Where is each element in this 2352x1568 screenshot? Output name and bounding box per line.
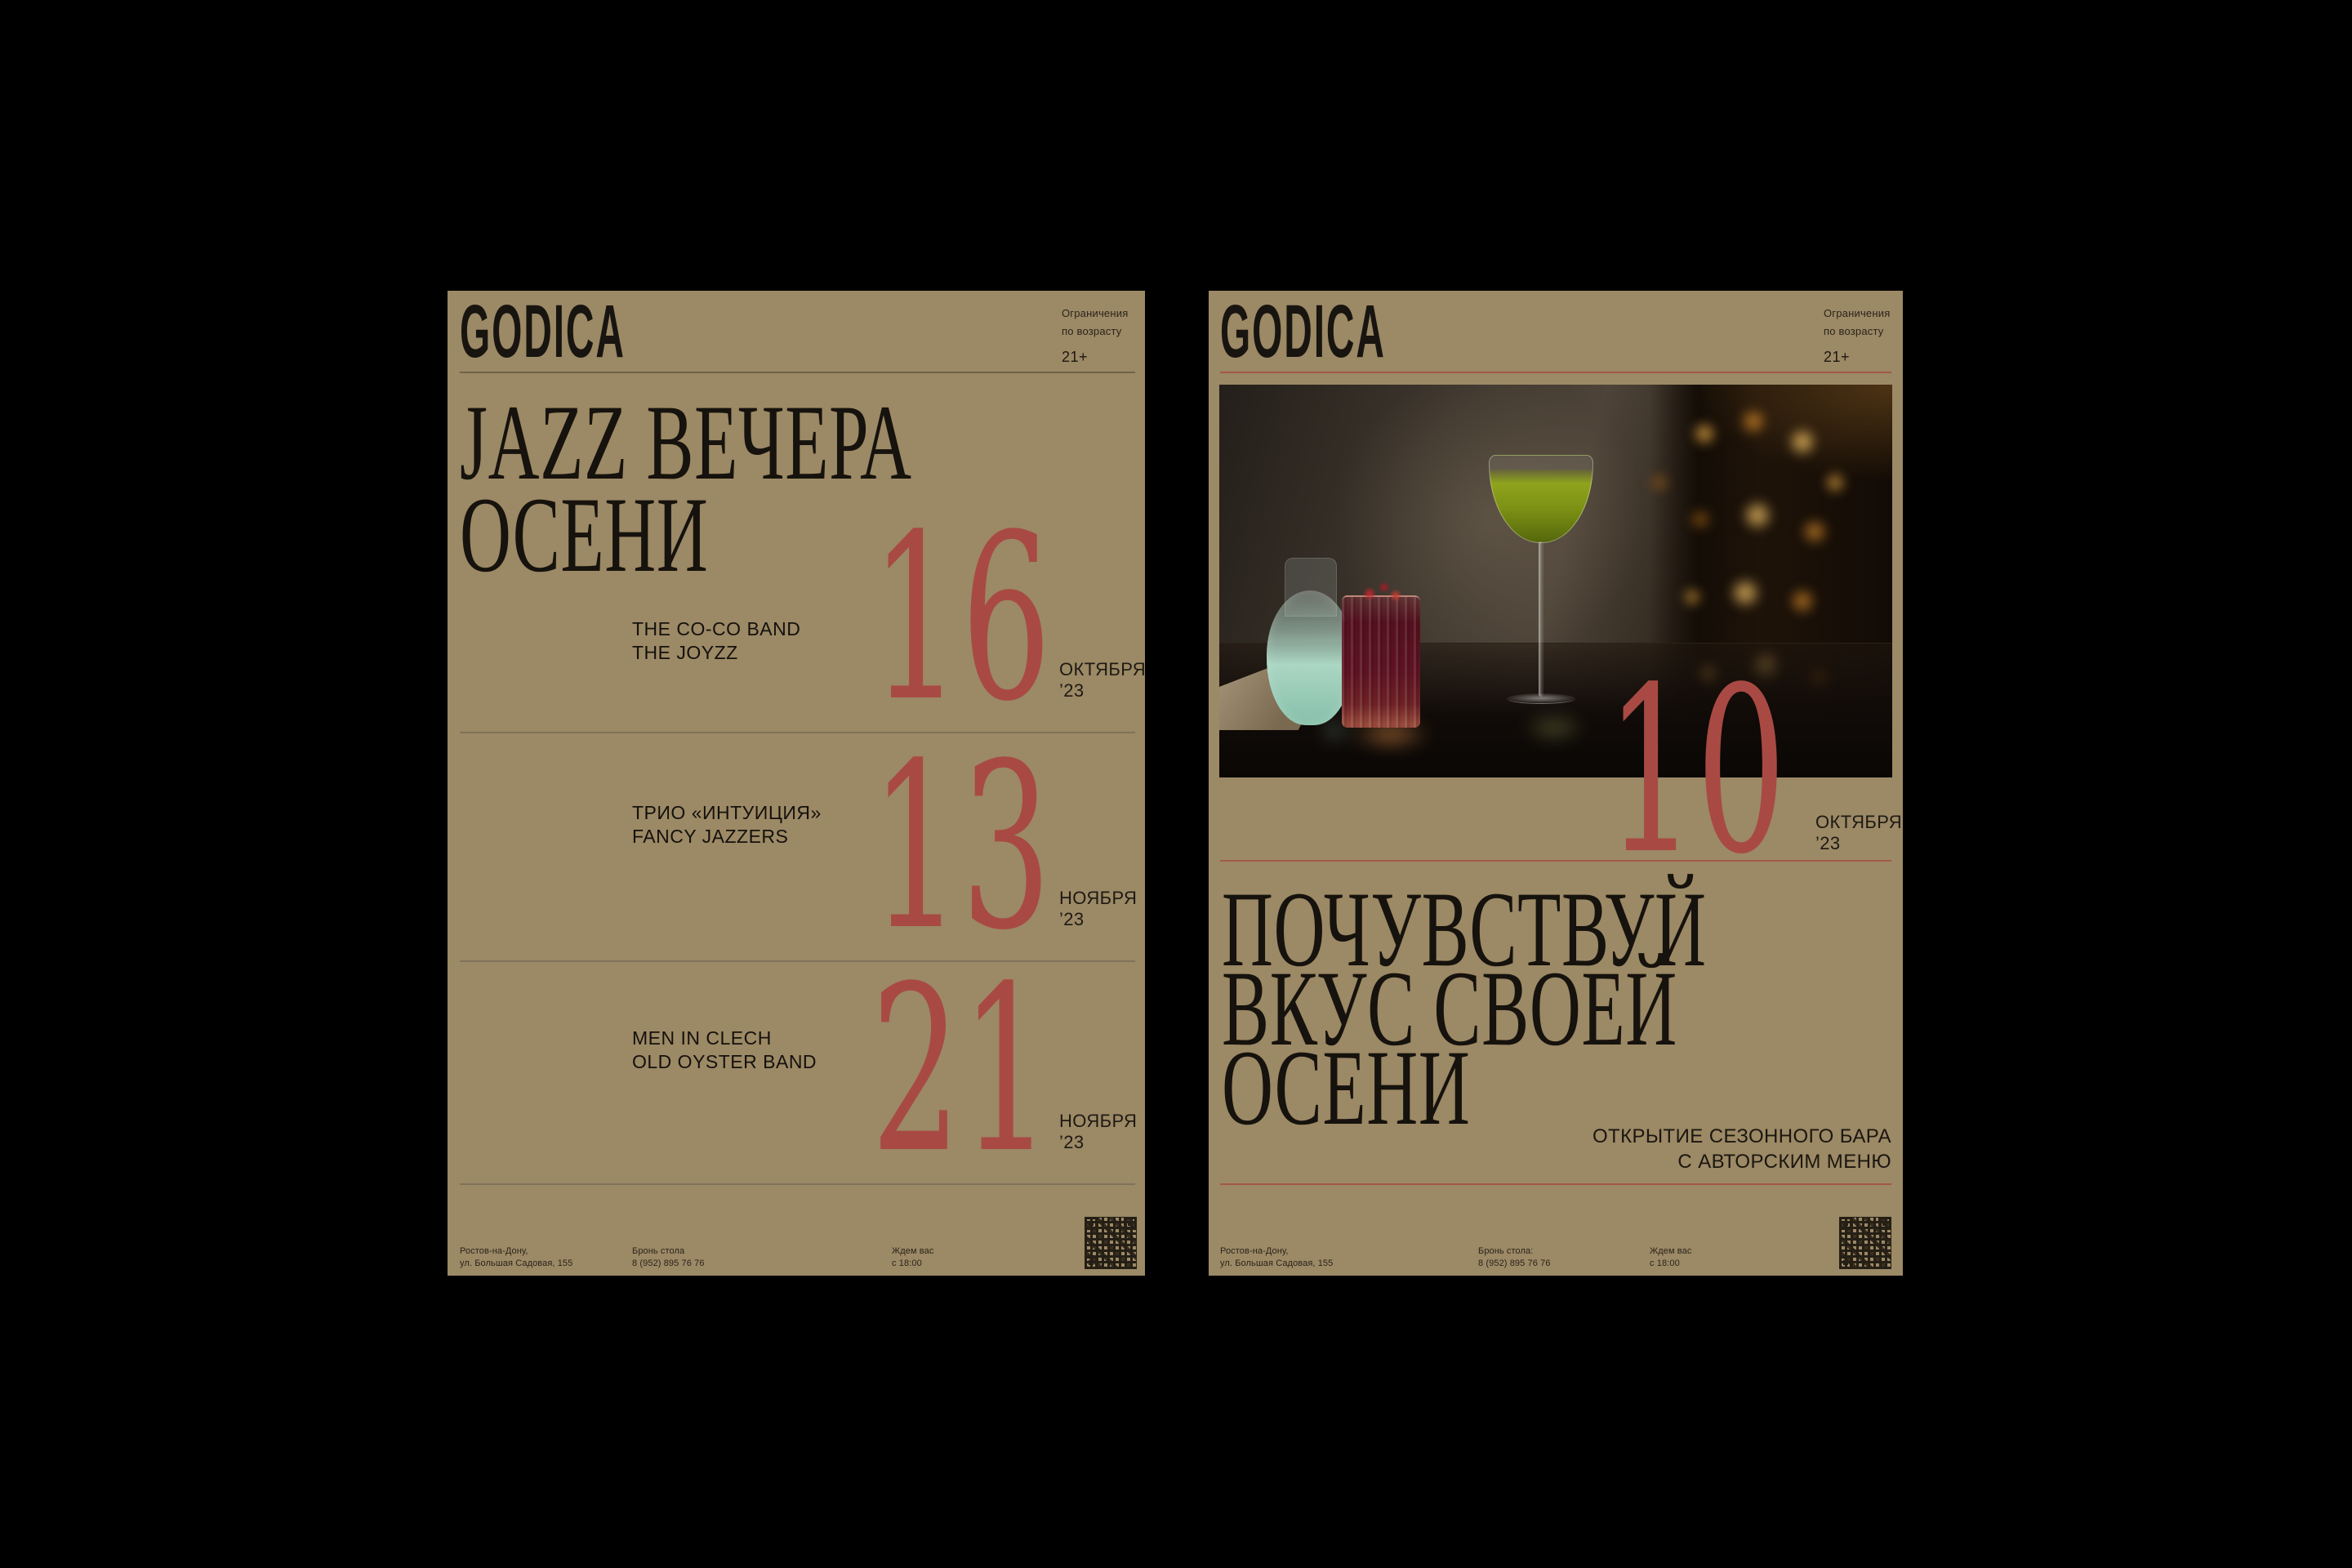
qr-finder	[1839, 1256, 1852, 1269]
rocks-glass-red-cocktail	[1342, 595, 1420, 728]
qr-code	[1085, 1217, 1137, 1269]
footer-hours: Ждем вас с 18:00	[892, 1245, 933, 1270]
event-lineup: MEN IN CLECH OLD OYSTER BAND	[632, 1027, 817, 1074]
footer-divider	[460, 1183, 1135, 1185]
footer-address: Ростов-на-Дону, ул. Большая Садовая, 155	[460, 1245, 572, 1270]
age-note-line1: Ограничения	[1824, 305, 1890, 323]
godica-logo: GODICA	[1220, 294, 1386, 369]
footer-line: Ростов-на-Дону,	[1220, 1245, 1333, 1258]
event-day-number: 13	[871, 733, 1051, 962]
qr-finder	[1085, 1217, 1098, 1230]
footer-booking: Бронь стола 8 (952) 895 76 76	[632, 1245, 705, 1270]
footer-line: 8 (952) 895 76 76	[1478, 1258, 1551, 1270]
qr-finder	[1878, 1217, 1891, 1230]
flower-garnish	[1356, 579, 1409, 608]
qr-finder	[1124, 1217, 1137, 1230]
event-year: ’23	[1059, 680, 1146, 702]
event-month: НОЯБРЯ	[1059, 888, 1137, 909]
event-month: НОЯБРЯ	[1059, 1111, 1137, 1132]
event-date-label: ОКТЯБРЯ ’23	[1815, 812, 1902, 854]
event-lineup: ТРИО «ИНТУИЦИЯ» FANCY JAZZERS	[632, 801, 822, 849]
event-year: ’23	[1059, 1132, 1137, 1153]
qr-finder	[1085, 1256, 1098, 1269]
date-divider	[1220, 860, 1891, 862]
event-lineup: THE CO-CO BAND THE JOYZZ	[632, 617, 800, 665]
age-note-line1: Ограничения	[1062, 305, 1128, 323]
header-divider	[460, 372, 1135, 373]
age-restriction-note: Ограничения по возрасту	[1062, 305, 1128, 341]
lineup-line: MEN IN CLECH	[632, 1027, 817, 1050]
lineup-line: OLD OYSTER BAND	[632, 1050, 817, 1074]
coupe-foot	[1507, 693, 1575, 704]
event-year: ’23	[1815, 833, 1902, 854]
poster-title-line2: ОСЕНИ	[460, 481, 708, 589]
event-year: ’23	[1059, 909, 1137, 930]
subtitle-line: ОТКРЫТИЕ СЕЗОННОГО БАРА	[1592, 1124, 1891, 1149]
event-day-number: 10	[1606, 657, 1786, 886]
footer-line: Бронь стола:	[1478, 1245, 1551, 1258]
poster-season-bar-opening: GODICA Ограничения по возрасту 21+ 10 ОК…	[1209, 291, 1903, 1276]
event-month: ОКТЯБРЯ	[1059, 659, 1146, 680]
lineup-line: ТРИО «ИНТУИЦИЯ»	[632, 801, 822, 825]
footer-line: ул. Большая Садовая, 155	[460, 1258, 572, 1270]
lineup-line: FANCY JAZZERS	[632, 825, 822, 849]
glass-ribs	[1342, 597, 1420, 728]
footer-line: 8 (952) 895 76 76	[632, 1258, 705, 1270]
age-badge: 21+	[1824, 350, 1850, 364]
event-month: ОКТЯБРЯ	[1815, 812, 1902, 833]
event-date-label: НОЯБРЯ ’23	[1059, 888, 1137, 930]
footer-line: с 18:00	[1650, 1258, 1691, 1270]
age-note-line2: по возрасту	[1062, 323, 1128, 341]
age-badge: 21+	[1062, 350, 1088, 364]
footer-booking: Бронь стола: 8 (952) 895 76 76	[1478, 1245, 1551, 1270]
warm-light-leak	[1690, 385, 1892, 483]
footer-line: Ростов-на-Дону,	[460, 1245, 572, 1258]
event-date-label: НОЯБРЯ ’23	[1059, 1111, 1137, 1153]
footer-line: Ждем вас	[1650, 1245, 1691, 1258]
header-divider	[1220, 372, 1891, 373]
footer-line: с 18:00	[892, 1258, 933, 1270]
footer-line: ул. Большая Садовая, 155	[1220, 1258, 1333, 1270]
lineup-line: THE CO-CO BAND	[632, 617, 800, 641]
footer-divider	[1220, 1183, 1891, 1185]
age-restriction-note: Ограничения по возрасту	[1824, 305, 1890, 341]
event-date-label: ОКТЯБРЯ ’23	[1059, 659, 1146, 702]
godica-logo: GODICA	[460, 294, 626, 369]
footer-address: Ростов-на-Дону, ул. Большая Садовая, 155	[1220, 1245, 1333, 1270]
coupe-stem	[1539, 541, 1543, 697]
cocktail-photo	[1219, 385, 1892, 777]
poster-jazz-evenings: GODICA Ограничения по возрасту 21+ JAZZ …	[448, 291, 1145, 1276]
qr-finder	[1839, 1217, 1852, 1230]
event-day-number: 16	[871, 505, 1051, 733]
footer-line: Ждем вас	[892, 1245, 933, 1258]
footer-hours: Ждем вас с 18:00	[1650, 1245, 1691, 1270]
poster-subtitle: ОТКРЫТИЕ СЕЗОННОГО БАРА С АВТОРСКИМ МЕНЮ	[1592, 1124, 1891, 1174]
poster-title-line3: ОСЕНИ	[1222, 1034, 1470, 1142]
event-day-number: 21	[871, 956, 1051, 1185]
footer-line: Бронь стола	[632, 1245, 705, 1258]
age-note-line2: по возрасту	[1824, 323, 1890, 341]
carafe-glass	[1267, 590, 1353, 725]
lineup-line: THE JOYZZ	[632, 641, 800, 665]
qr-code	[1839, 1217, 1891, 1269]
subtitle-line: С АВТОРСКИМ МЕНЮ	[1592, 1149, 1891, 1174]
